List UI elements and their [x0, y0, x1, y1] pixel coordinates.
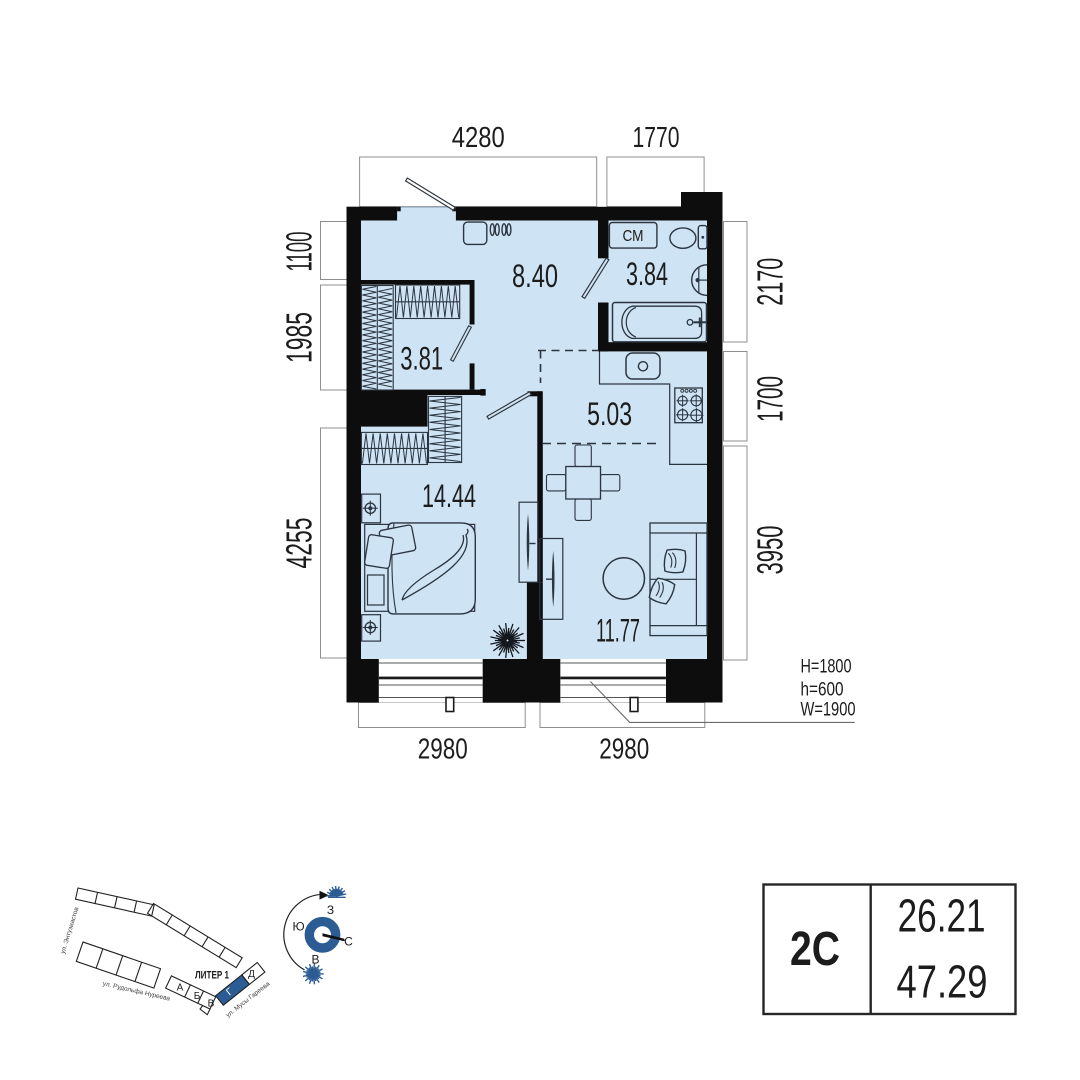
svg-text:ЛИТЕР 1: ЛИТЕР 1 [195, 970, 229, 982]
svg-text:W=1900: W=1900 [801, 700, 856, 721]
svg-text:Б: Б [194, 991, 201, 1002]
svg-text:5.03: 5.03 [587, 396, 632, 432]
svg-text:В: В [311, 953, 319, 967]
svg-text:В: В [208, 999, 215, 1010]
svg-text:14.44: 14.44 [422, 478, 476, 514]
svg-text:3950: 3950 [750, 526, 791, 575]
svg-text:С: С [344, 935, 353, 949]
svg-text:2980: 2980 [599, 734, 649, 766]
svg-text:СМ: СМ [623, 228, 644, 245]
svg-text:З: З [327, 903, 334, 917]
svg-text:1985: 1985 [279, 312, 320, 363]
svg-text:2980: 2980 [418, 734, 468, 766]
svg-text:1100: 1100 [279, 232, 320, 272]
svg-text:4255: 4255 [279, 518, 320, 569]
svg-text:h=600: h=600 [801, 680, 844, 701]
svg-text:3.81: 3.81 [400, 340, 443, 376]
svg-text:4280: 4280 [452, 122, 505, 154]
svg-text:3.84: 3.84 [626, 256, 668, 292]
svg-text:1770: 1770 [633, 122, 680, 154]
svg-text:А: А [177, 983, 184, 994]
svg-text:Ю: Ю [292, 920, 304, 934]
svg-text:1700: 1700 [750, 376, 791, 422]
svg-text:2170: 2170 [750, 258, 791, 306]
svg-text:11.77: 11.77 [596, 612, 640, 648]
svg-text:47.29: 47.29 [897, 956, 988, 1008]
svg-text:2С: 2С [790, 923, 840, 976]
svg-text:H=1800: H=1800 [801, 657, 852, 678]
svg-text:8.40: 8.40 [512, 258, 558, 294]
svg-text:26.21: 26.21 [898, 890, 986, 942]
svg-text:Д: Д [248, 969, 255, 980]
